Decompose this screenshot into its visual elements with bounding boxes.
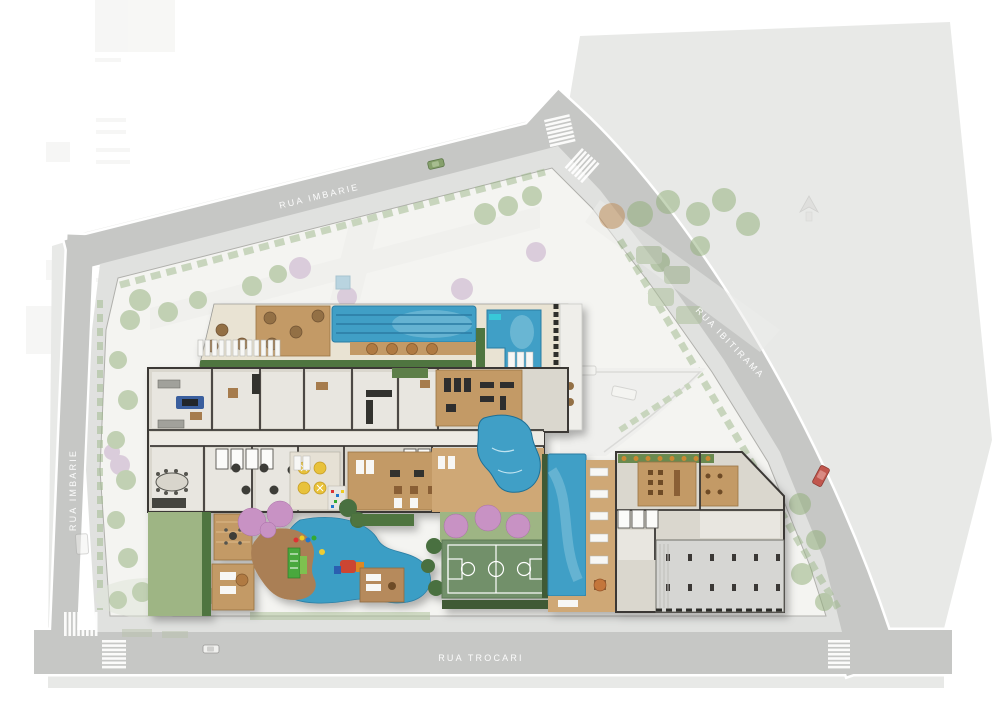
street-label-left: RUA IMBARIE <box>68 449 78 531</box>
sports-court <box>440 505 552 609</box>
site-plan-canvas: RUA IMBARIE RUA IMBARIE RUA IBITIRAMA RU… <box>0 0 1000 715</box>
right-tower <box>542 452 784 612</box>
pool-marker <box>489 314 501 320</box>
lawn-west <box>148 512 204 616</box>
garden-spa <box>336 276 350 289</box>
bus-pad <box>162 631 188 638</box>
car-white <box>203 645 219 653</box>
tv-cabinet <box>152 498 186 508</box>
in-pool-loungers <box>508 352 533 368</box>
garage-area <box>656 540 784 612</box>
tower-lobby <box>638 462 696 506</box>
bus-pad <box>122 629 152 637</box>
deck-bench <box>558 600 578 607</box>
tower-lap-pool <box>548 454 586 596</box>
indoor-planter <box>392 368 428 378</box>
tower-lounge <box>700 466 738 506</box>
tower-room <box>700 512 780 538</box>
hedge-mid <box>352 514 414 526</box>
playground-wood-deck <box>360 568 404 602</box>
car-white-left-road <box>75 534 88 555</box>
pergola-deck-2 <box>212 564 254 610</box>
site-plan: RUA IMBARIE RUA IMBARIE RUA IBITIRAMA RU… <box>0 0 1000 715</box>
court-hedge <box>442 600 550 609</box>
street-label-bottom: RUA TROCARI <box>438 653 524 663</box>
tower-room <box>618 530 654 560</box>
tower-pool-hedge <box>542 454 548 598</box>
south-gardens <box>148 499 552 616</box>
deck-lounger <box>448 456 455 469</box>
lap-pool <box>332 306 476 342</box>
hedge-band-south <box>250 612 430 620</box>
dining-table <box>156 473 188 491</box>
tower-elevators <box>618 510 658 528</box>
deck-lounger <box>438 456 445 469</box>
tower-pool-deck <box>586 460 616 598</box>
road-left <box>64 248 80 634</box>
deck-hedge-vertical <box>476 328 485 372</box>
main-floor-plan <box>148 368 568 512</box>
hedge-column <box>202 512 211 616</box>
lounge-table <box>182 399 198 406</box>
orange-tree <box>599 203 625 229</box>
